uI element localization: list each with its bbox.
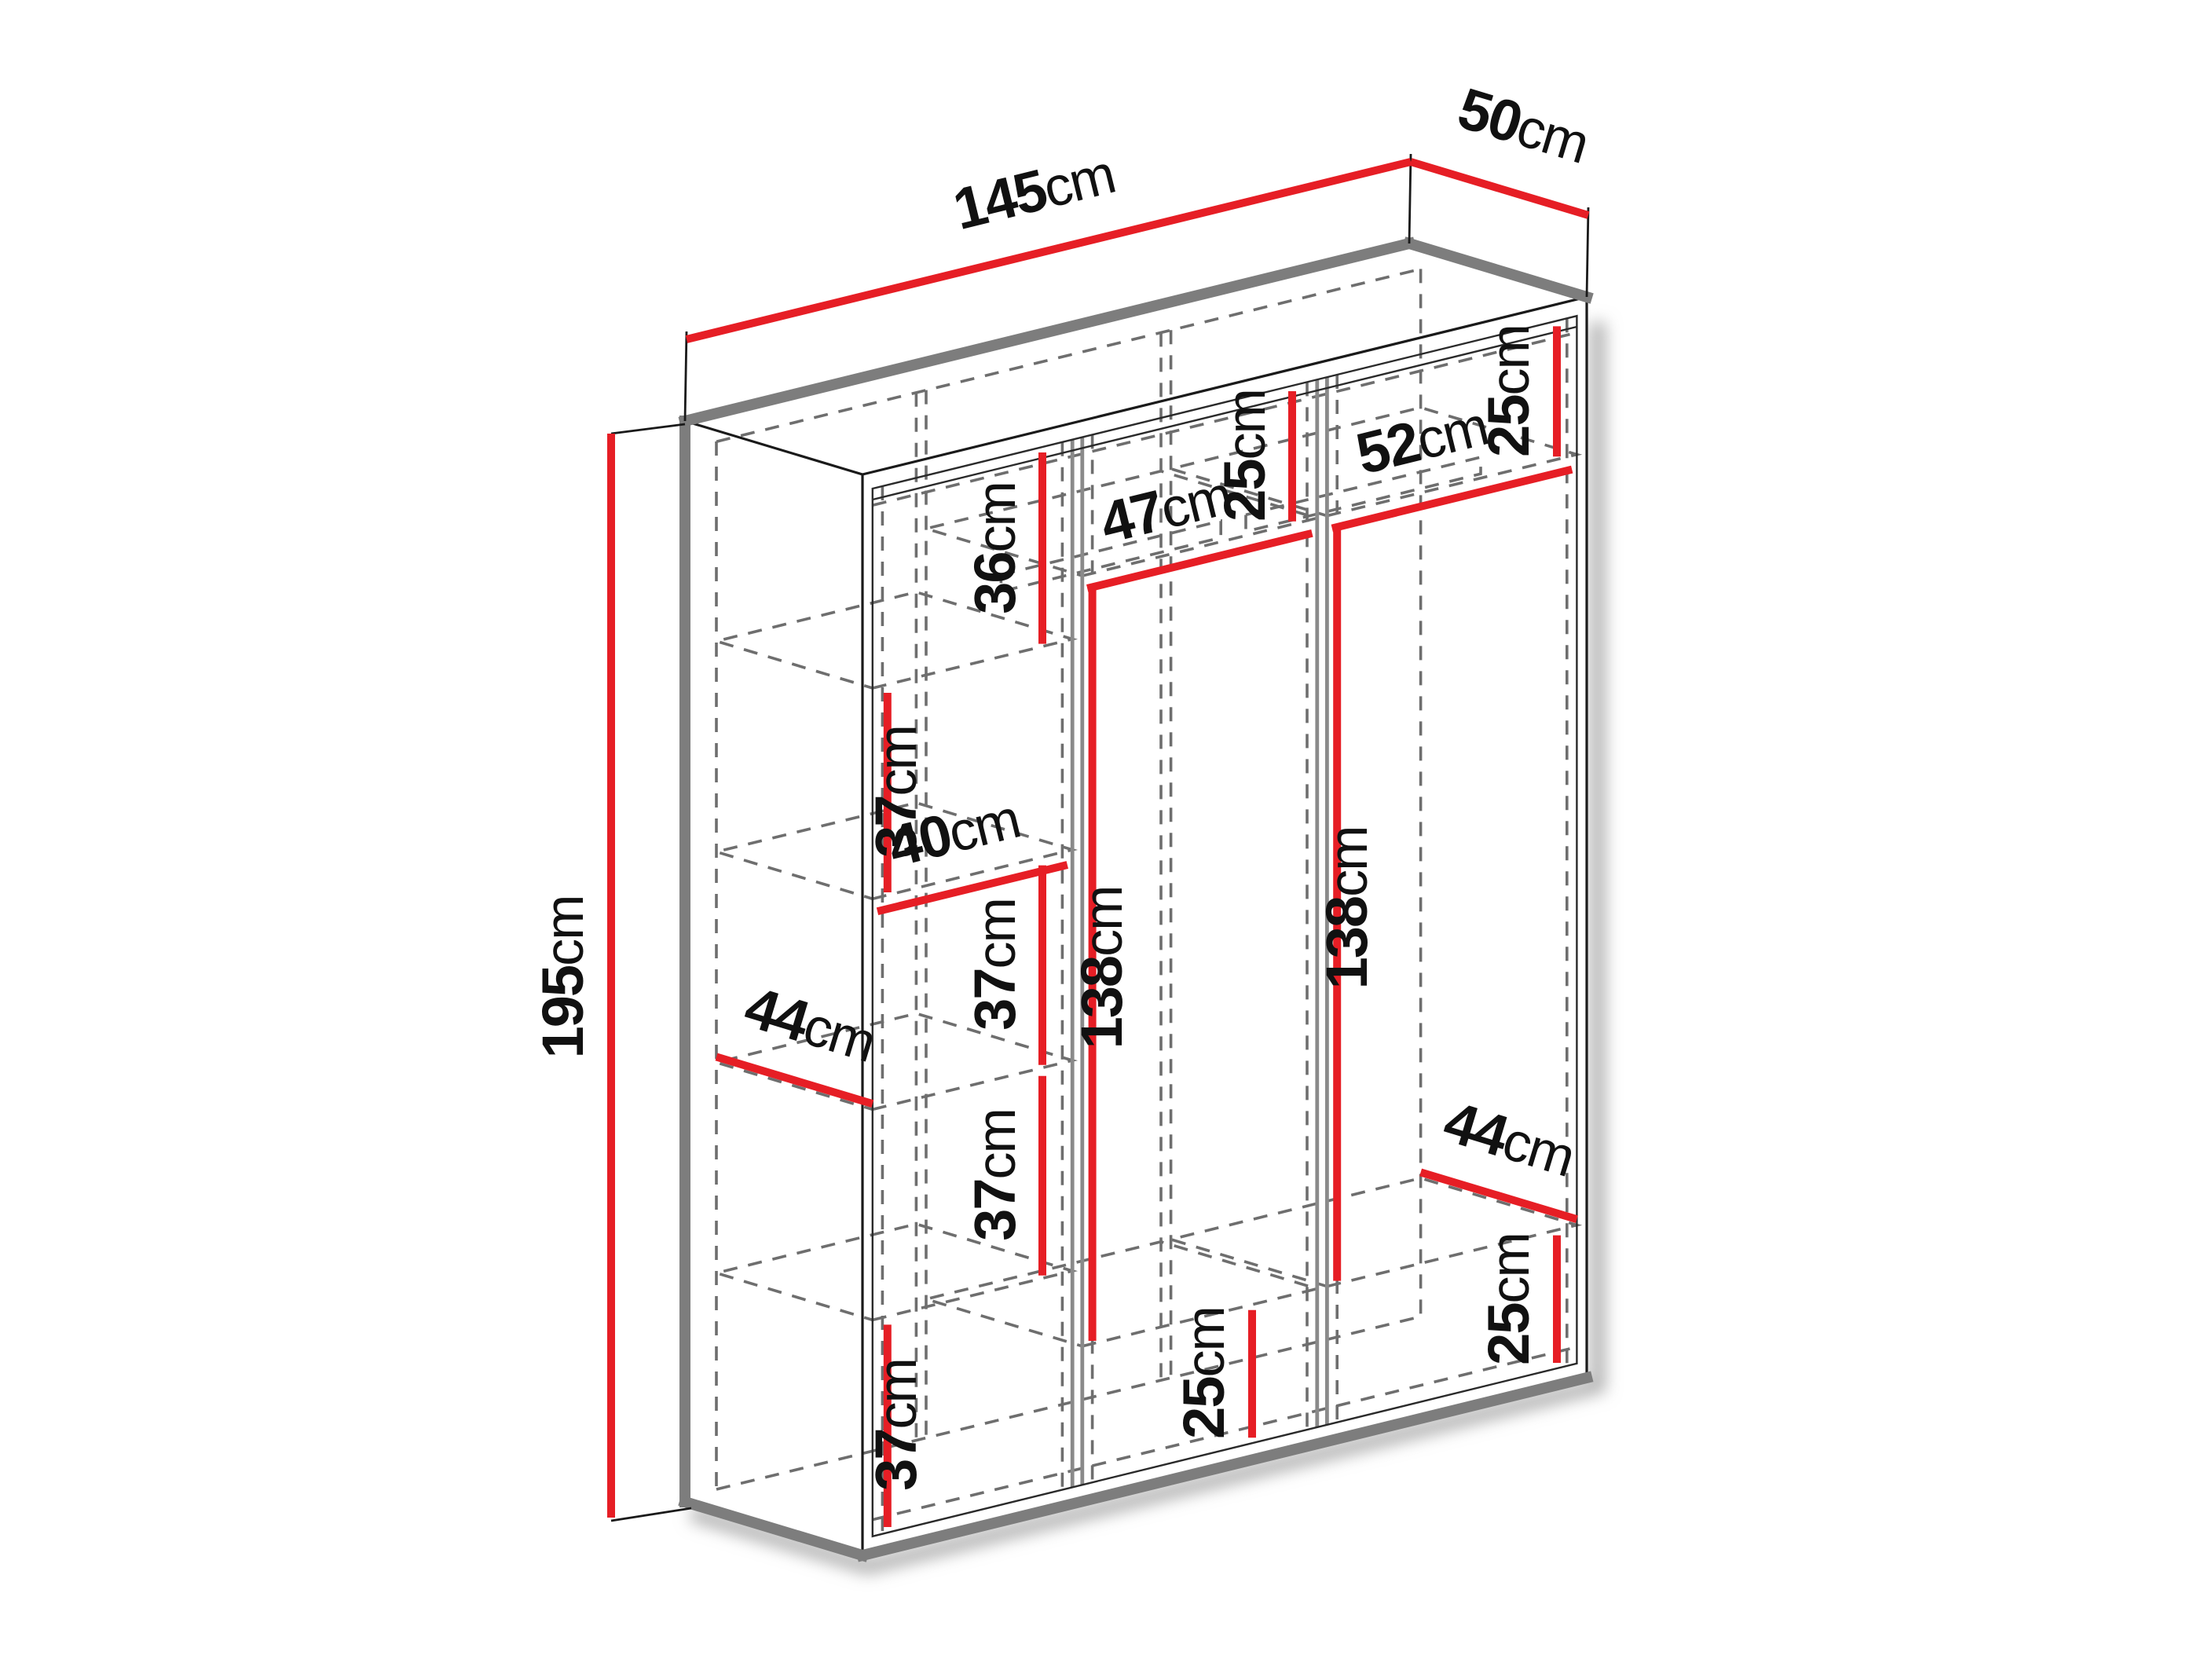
ext-width-right: [1409, 154, 1411, 244]
label-middle-138: 138cm: [1069, 887, 1134, 1049]
label-left-37b: 37cm: [962, 899, 1027, 1031]
ext-height-bottom: [611, 1508, 691, 1521]
label-left-37c: 37cm: [962, 1109, 1027, 1241]
label-overall-width: 145cm: [947, 140, 1121, 242]
wardrobe-dimension-diagram: 145cm 50cm 195cm 36cm 37cm 40cm 44cm 37c…: [0, 0, 2212, 1659]
label-left-36: 36cm: [962, 482, 1027, 614]
label-right-25-bottom: 25cm: [1476, 1233, 1541, 1365]
ext-height-top: [611, 424, 685, 434]
label-overall-height: 195cm: [530, 896, 595, 1059]
label-left-37d: 37cm: [863, 1359, 928, 1491]
label-overall-depth: 50cm: [1451, 75, 1595, 176]
label-middle-25-bottom: 25cm: [1171, 1307, 1236, 1439]
label-right-138: 138cm: [1314, 827, 1379, 990]
diagram-stage: 145cm 50cm 195cm 36cm 37cm 40cm 44cm 37c…: [0, 0, 2212, 1659]
ext-depth-front: [1587, 207, 1588, 297]
ext-width-left: [685, 331, 687, 421]
